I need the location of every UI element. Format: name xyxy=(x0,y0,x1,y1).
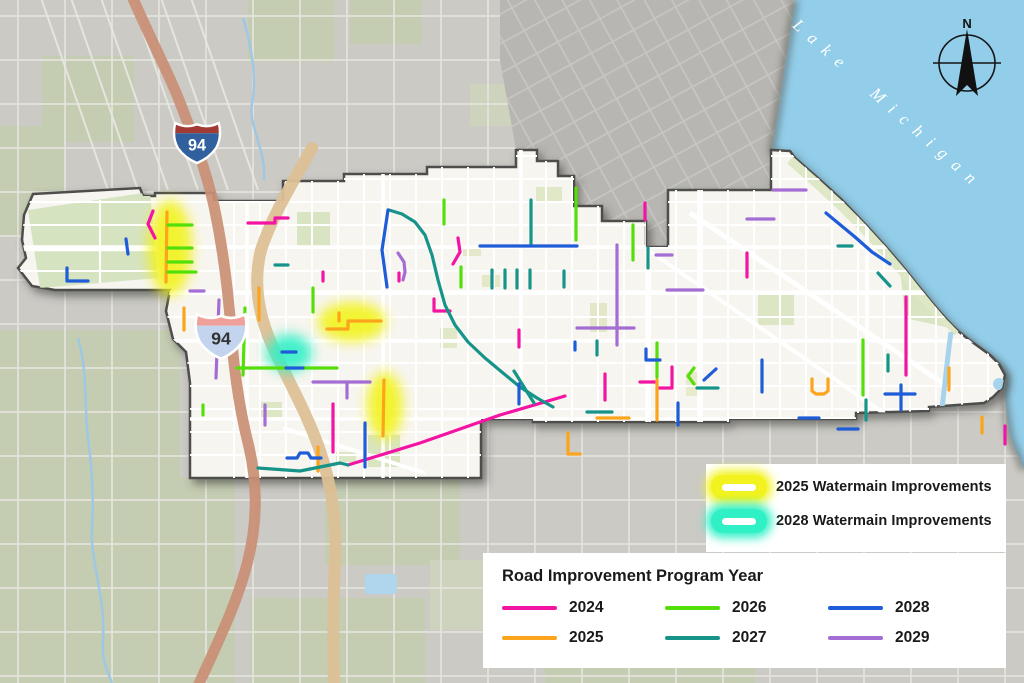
year-2024-swatch xyxy=(502,606,557,610)
watermain-2028-swatch xyxy=(711,509,767,533)
pond xyxy=(365,574,397,594)
shield-number: 94 xyxy=(188,136,206,154)
year-2029-swatch xyxy=(828,636,883,640)
legend-year-2029: 2029 xyxy=(828,623,988,653)
legend-road-program: Road Improvement Program Year 2024 2025 … xyxy=(483,553,1006,668)
legend-road-program-title: Road Improvement Program Year xyxy=(483,553,1006,586)
legend-year-2025: 2025 xyxy=(502,623,665,653)
road-segment-2028 xyxy=(126,239,128,254)
year-2028-swatch xyxy=(828,606,883,610)
legend-year-2027: 2027 xyxy=(665,623,828,653)
map-screenshot: 9494 Lake Michigan N 2025 Watermain Impr… xyxy=(0,0,1024,683)
year-2024-label: 2024 xyxy=(569,599,603,617)
year-2025-swatch xyxy=(502,636,557,640)
year-2027-swatch xyxy=(665,636,720,640)
legend-watermain-row-2028: 2028 Watermain Improvements xyxy=(706,504,1006,538)
year-2027-label: 2027 xyxy=(732,629,766,647)
year-2028-label: 2028 xyxy=(895,599,929,617)
legend-year-2024: 2024 xyxy=(502,593,665,623)
legend-year-2028: 2028 xyxy=(828,593,988,623)
north-label: N xyxy=(962,16,971,31)
legend-watermain-row-2025: 2025 Watermain Improvements xyxy=(706,470,1006,504)
year-2026-label: 2026 xyxy=(732,599,766,617)
year-2026-swatch xyxy=(665,606,720,610)
shield-number: 94 xyxy=(211,329,231,349)
legend-year-2026: 2026 xyxy=(665,593,828,623)
year-2029-label: 2029 xyxy=(895,629,929,647)
road-segment-2025 xyxy=(383,380,384,436)
watermain-2028-label: 2028 Watermain Improvements xyxy=(776,513,992,529)
legend-road-program-grid: 2024 2025 2026 2027 2028 2029 xyxy=(483,593,1006,653)
legend-watermain: 2025 Watermain Improvements 2028 Waterma… xyxy=(706,464,1006,552)
year-2025-label: 2025 xyxy=(569,629,603,647)
watermain-2025-label: 2025 Watermain Improvements xyxy=(776,479,992,495)
watermain-2025-swatch xyxy=(711,475,767,499)
